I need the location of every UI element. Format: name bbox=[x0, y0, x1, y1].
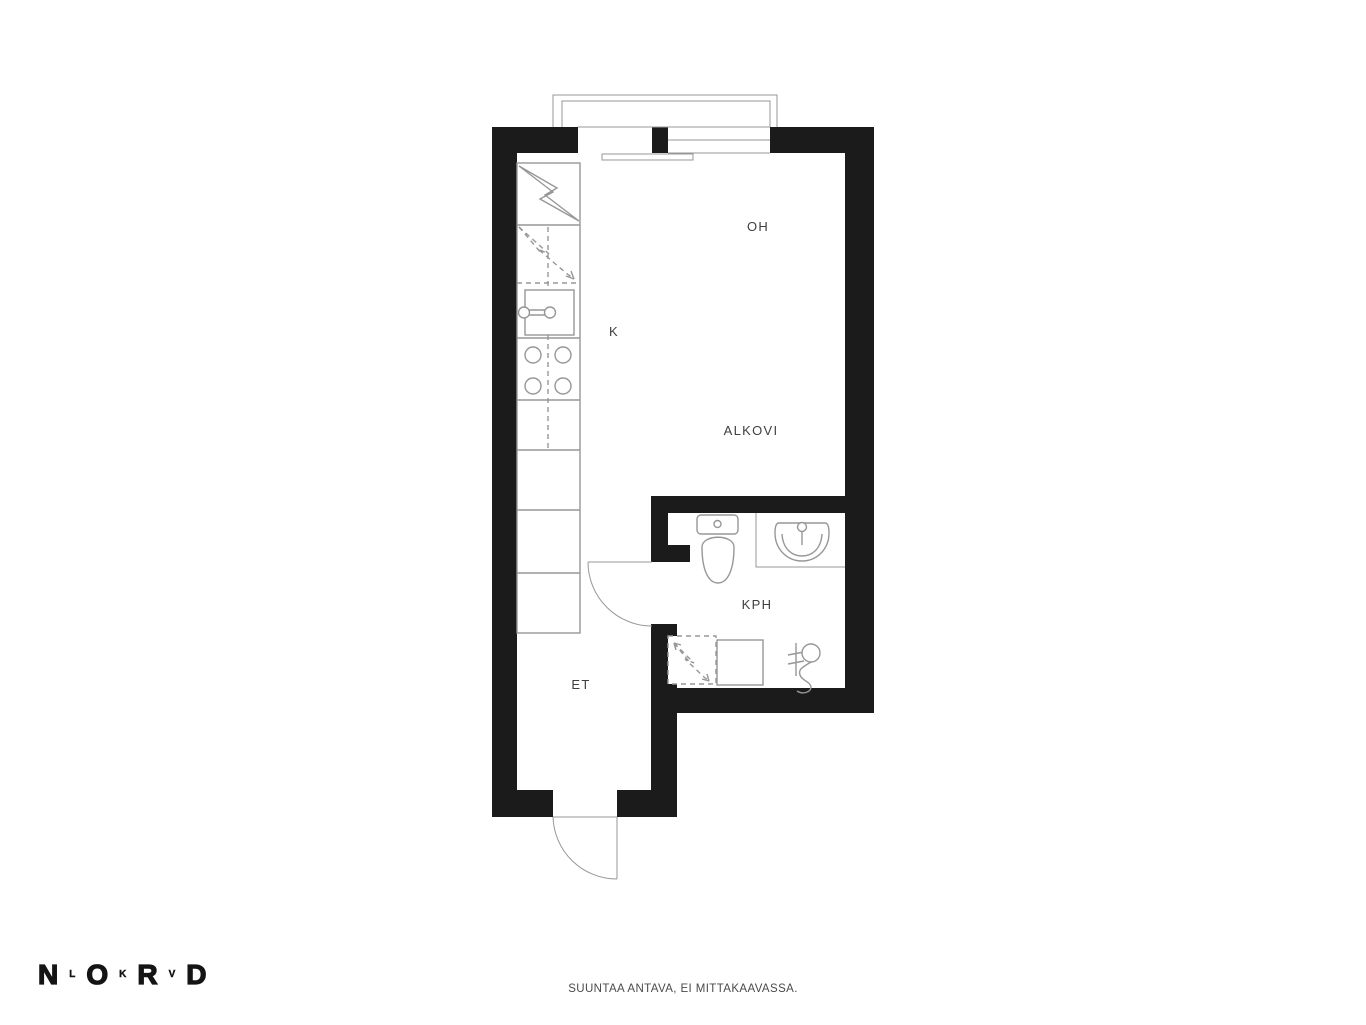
toilet-symbol bbox=[697, 515, 738, 583]
room-labels: OH K ALKOVI KPH ET bbox=[571, 219, 778, 692]
room-label-alkovi: ALKOVI bbox=[724, 423, 779, 438]
room-label-kph: KPH bbox=[742, 597, 773, 612]
entry-door bbox=[553, 817, 617, 879]
logo-letter-k: K bbox=[119, 970, 126, 980]
logo-letter-v: V bbox=[169, 970, 176, 980]
disclaimer-text: SUUNTAA ANTAVA, EI MITTAKAAVASSA. bbox=[0, 983, 1366, 995]
bathroom-door bbox=[588, 562, 652, 626]
bathroom-cabinet bbox=[717, 640, 763, 685]
balcony-outline bbox=[553, 95, 777, 127]
washbasin-symbol bbox=[756, 513, 845, 567]
kitchen-sink-symbol bbox=[519, 290, 575, 335]
logo-letter-l: L bbox=[69, 970, 75, 980]
page: OH K ALKOVI KPH ET N L O K R V D SUUNTAA… bbox=[0, 0, 1366, 1025]
floor-plan: OH K ALKOVI KPH ET bbox=[0, 0, 1366, 1025]
room-label-et: ET bbox=[571, 677, 590, 692]
window bbox=[578, 127, 770, 153]
room-label-oh: OH bbox=[747, 219, 769, 234]
room-label-k: K bbox=[609, 324, 619, 339]
balcony-door-threshold bbox=[602, 154, 693, 160]
washing-machine-reservation bbox=[668, 636, 716, 684]
shower-symbol bbox=[788, 643, 820, 693]
